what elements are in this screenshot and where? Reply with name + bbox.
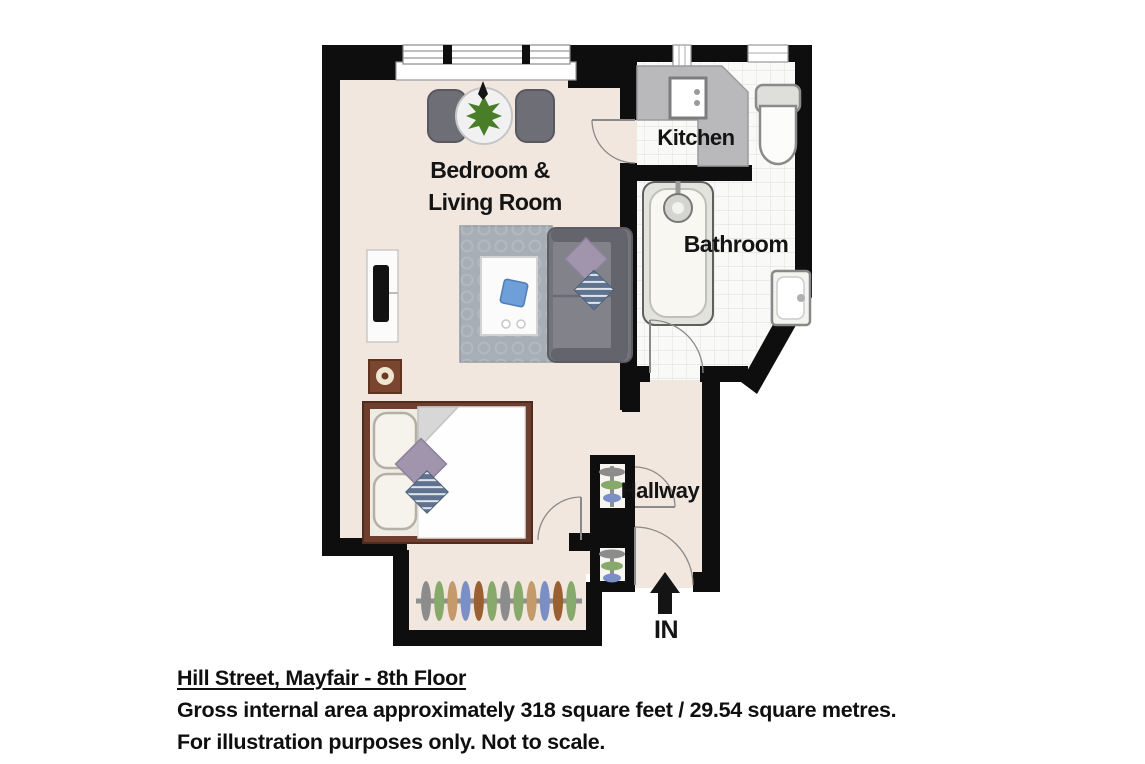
hanger-icon bbox=[447, 581, 457, 621]
hanger-icon bbox=[599, 550, 625, 559]
bed-pillow bbox=[374, 474, 416, 529]
wall-wardrobe-right bbox=[586, 582, 602, 646]
wall-right bbox=[795, 45, 812, 297]
sofa-armrest bbox=[551, 348, 627, 361]
hanger-icon bbox=[421, 581, 431, 621]
wall-wardrobe-bottom bbox=[393, 630, 602, 646]
sink-faucet bbox=[694, 89, 700, 95]
hanger-icon bbox=[474, 581, 484, 621]
shower-head-center bbox=[672, 202, 684, 214]
cup bbox=[517, 320, 525, 328]
wall-hallway-right bbox=[702, 378, 720, 592]
speaker-center bbox=[382, 373, 389, 380]
hanger-icon bbox=[566, 581, 576, 621]
hanger-icon bbox=[461, 581, 471, 621]
floor-plan: Bedroom & Living Room Kitchen Bathroom H… bbox=[0, 0, 1145, 764]
basin-faucet bbox=[797, 294, 805, 302]
wall-door-hinge-block bbox=[569, 533, 590, 551]
hanger-icon bbox=[540, 581, 550, 621]
window-panes bbox=[403, 45, 570, 64]
book bbox=[500, 279, 528, 307]
hanger-icon bbox=[603, 494, 621, 503]
kitchen-label: Kitchen bbox=[657, 125, 734, 150]
sink-faucet bbox=[694, 100, 700, 106]
wall-main-right-upper bbox=[620, 62, 637, 120]
hallway-label: Hallway bbox=[621, 478, 701, 503]
hanger-icon bbox=[434, 581, 444, 621]
entrance-label: IN bbox=[654, 616, 678, 644]
window-sill bbox=[396, 62, 576, 80]
wall-kitchen-top-left bbox=[637, 45, 673, 62]
toilet-bowl bbox=[760, 106, 796, 164]
wall-left bbox=[322, 45, 340, 556]
caption-area: Gross internal area approximately 318 sq… bbox=[177, 694, 896, 726]
hanger-icon bbox=[599, 468, 625, 477]
wall-kitchen-top-right bbox=[691, 45, 748, 62]
window-pier bbox=[443, 45, 452, 64]
hanger-icon bbox=[500, 581, 510, 621]
caption-title: Hill Street, Mayfair - 8th Floor bbox=[177, 662, 896, 694]
hanger-icon bbox=[487, 581, 497, 621]
floor-plan-page: Bedroom & Living Room Kitchen Bathroom H… bbox=[0, 0, 1145, 764]
dining-set bbox=[428, 81, 554, 144]
cup bbox=[502, 320, 510, 328]
bathroom-label: Bathroom bbox=[684, 231, 789, 257]
tv-screen bbox=[373, 265, 389, 322]
hanger-icon bbox=[553, 581, 563, 621]
tv-area bbox=[367, 250, 401, 393]
bedroom-living-label-2: Living Room bbox=[428, 189, 562, 215]
hanger-icon bbox=[601, 481, 623, 490]
hanger-icon bbox=[601, 562, 623, 571]
caption: Hill Street, Mayfair - 8th Floor Gross i… bbox=[177, 662, 896, 758]
bedroom-living-label-1: Bedroom & bbox=[430, 157, 549, 183]
hanger-icon bbox=[527, 581, 537, 621]
bed bbox=[363, 402, 532, 543]
kitchen-sink bbox=[670, 78, 706, 118]
wall-kitchen-bath-divider bbox=[630, 165, 752, 181]
hanger-icon bbox=[513, 581, 523, 621]
window-pier bbox=[522, 45, 530, 64]
hanger-icon bbox=[603, 574, 621, 583]
living-area bbox=[460, 226, 632, 362]
wall-bottom-right-corner bbox=[693, 572, 720, 592]
caption-disclaimer: For illustration purposes only. Not to s… bbox=[177, 726, 896, 758]
dining-chair bbox=[516, 90, 554, 142]
sofa-back bbox=[611, 234, 628, 356]
